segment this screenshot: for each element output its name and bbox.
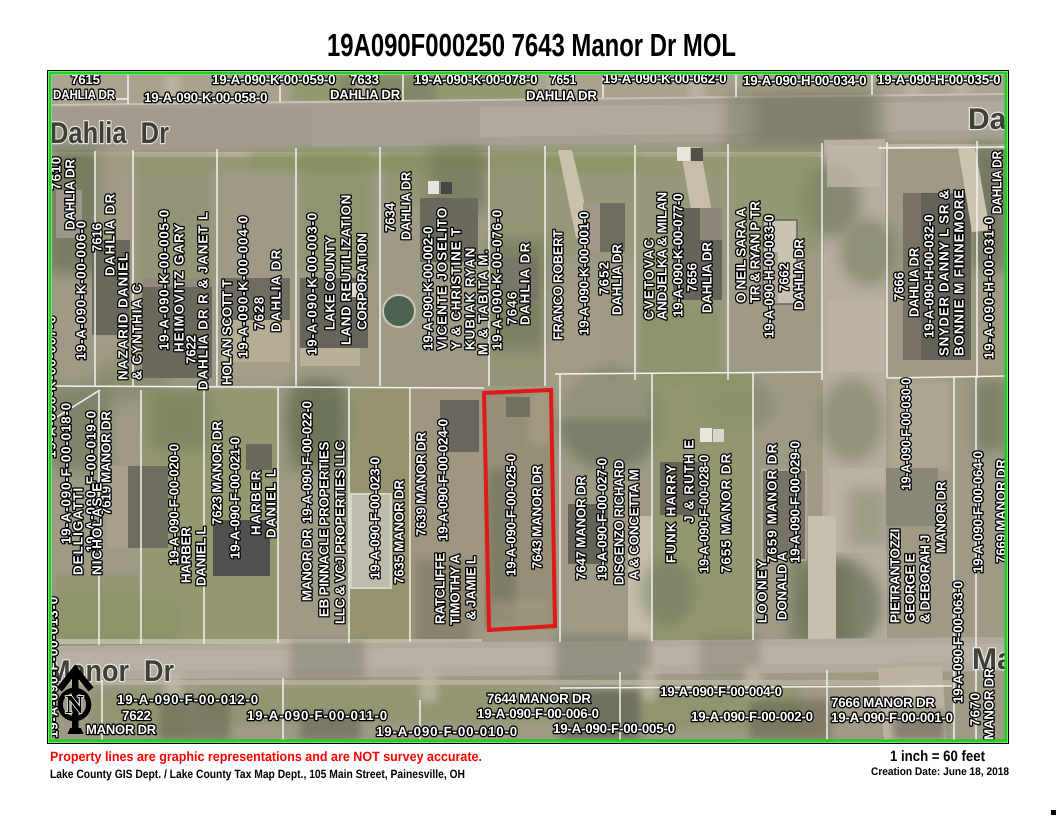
- svg-text:7634: 7634: [383, 202, 398, 232]
- svg-text:7666: 7666: [892, 272, 907, 301]
- svg-text:SNYDER DANNY L SR &: SNYDER DANNY L SR &: [937, 189, 952, 356]
- svg-text:A & CONCETTA M: A & CONCETTA M: [627, 469, 642, 580]
- svg-text:19-A-090-F-00-011-0: 19-A-090-F-00-011-0: [247, 708, 387, 723]
- svg-text:19A090F000250 7643 Manor Dr MO: 19A090F000250 7643 Manor Dr MOL: [327, 27, 736, 63]
- svg-text:& DEBORAH J: & DEBORAH J: [918, 535, 933, 623]
- svg-text:DAHLIA DR: DAHLIA DR: [399, 171, 414, 240]
- svg-text:EB PINNACLE PROPERTIES: EB PINNACLE PROPERTIES: [317, 442, 332, 617]
- svg-text:PIETRANTOZZI: PIETRANTOZZI: [888, 529, 903, 623]
- svg-text:HEIMOVITZ GARY: HEIMOVITZ GARY: [172, 224, 187, 352]
- svg-text:Dahlia Dr: Dahlia Dr: [50, 117, 169, 150]
- svg-text:DELLIGATTI: DELLIGATTI: [71, 488, 86, 575]
- svg-text:19-A-090-F-00-030-0: 19-A-090-F-00-030-0: [899, 378, 914, 490]
- svg-text:19-A-090-F-00-001-0: 19-A-090-F-00-001-0: [831, 710, 953, 725]
- svg-text:DAHLIA DR: DAHLIA DR: [792, 239, 807, 310]
- svg-text:& JAMIE L: & JAMIE L: [464, 556, 479, 620]
- svg-text:DONALD A: DONALD A: [775, 551, 790, 620]
- svg-text:MANOR DR: MANOR DR: [300, 529, 315, 601]
- svg-text:DAHLIA DR: DAHLIA DR: [269, 249, 284, 332]
- svg-text:DAHLIA DR: DAHLIA DR: [610, 244, 625, 315]
- svg-text:7639 MANOR DR: 7639 MANOR DR: [414, 432, 429, 536]
- svg-text:19-A-090-K-00-004-0: 19-A-090-K-00-004-0: [236, 216, 251, 358]
- svg-text:19-A-090-H-00-032-0: 19-A-090-H-00-032-0: [922, 215, 937, 338]
- svg-text:19-A-090-K-00-001-0: 19-A-090-K-00-001-0: [577, 212, 592, 335]
- svg-text:DANIEL L: DANIEL L: [264, 469, 279, 538]
- svg-text:19-A-090-F-00-012-0: 19-A-090-F-00-012-0: [117, 692, 258, 707]
- svg-text:O NEIL SARA A: O NEIL SARA A: [734, 207, 749, 303]
- svg-text:7628: 7628: [252, 297, 267, 330]
- svg-text:DAHLIA DR: DAHLIA DR: [907, 247, 922, 317]
- svg-text:Lake County GIS Dept. / Lake C: Lake County GIS Dept. / Lake County Tax …: [50, 767, 465, 781]
- svg-text:FRANCO ROBERT: FRANCO ROBERT: [551, 230, 566, 340]
- svg-text:7644 MANOR DR: 7644 MANOR DR: [487, 691, 591, 706]
- svg-text:19-A-090-K-00-076-0: 19-A-090-K-00-076-0: [490, 210, 505, 350]
- svg-text:7670: 7670: [968, 693, 983, 726]
- svg-text:DAHLIA DR: DAHLIA DR: [53, 87, 116, 102]
- svg-text:19-A-090-F-00-002-0: 19-A-090-F-00-002-0: [691, 709, 813, 724]
- svg-text:19-A-090-K-00-006-0: 19-A-090-K-00-006-0: [74, 221, 89, 360]
- svg-text:7635 MANOR DR: 7635 MANOR DR: [392, 480, 407, 584]
- svg-text:19-A-090-H-00-033-0: 19-A-090-H-00-033-0: [762, 215, 777, 338]
- svg-text:CORPORATION: CORPORATION: [355, 233, 370, 330]
- svg-text:DAHLIA DR: DAHLIA DR: [518, 242, 533, 325]
- svg-text:RATCLIFFE: RATCLIFFE: [433, 553, 448, 624]
- svg-text:7655 MANOR DR: 7655 MANOR DR: [719, 453, 734, 573]
- svg-text:19-A-090-K-00-077-0: 19-A-090-K-00-077-0: [671, 194, 686, 317]
- svg-text:TR & RYAN P TR: TR & RYAN P TR: [748, 201, 763, 303]
- svg-text:DAHLIA DR: DAHLIA DR: [330, 87, 401, 102]
- svg-text:J & RUTH E: J & RUTH E: [682, 440, 697, 523]
- svg-text:19-A-090-H-00-034-0: 19-A-090-H-00-034-0: [743, 73, 866, 88]
- svg-text:19-A-090-F-00-022-0: 19-A-090-F-00-022-0: [300, 401, 315, 523]
- svg-text:HARBER: HARBER: [179, 527, 194, 583]
- svg-text:19-A-090-F-00-029-0: 19-A-090-F-00-029-0: [788, 441, 803, 563]
- svg-text:19-A-090-F-00-023-0: 19-A-090-F-00-023-0: [368, 457, 383, 579]
- svg-text:19-A-090-F-00-005-0: 19-A-090-F-00-005-0: [553, 721, 675, 736]
- svg-text:LAND REUTILIZATION: LAND REUTILIZATION: [339, 195, 354, 345]
- svg-text:19-A-090-F-00-010-0: 19-A-090-F-00-010-0: [376, 724, 517, 739]
- svg-text:Property lines are graphic rep: Property lines are graphic representatio…: [50, 749, 482, 764]
- svg-text:19-A-090-F-00-025-0: 19-A-090-F-00-025-0: [504, 454, 519, 576]
- svg-text:19-A-090-K-00-002-0: 19-A-090-K-00-002-0: [421, 227, 436, 350]
- svg-text:DAHLIA DR: DAHLIA DR: [700, 242, 715, 313]
- svg-text:19-A-090-K-00-003-0: 19-A-090-K-00-003-0: [305, 213, 320, 355]
- svg-text:DAHLIA DR: DAHLIA DR: [63, 159, 78, 230]
- svg-text:DISCENZO RICHARD: DISCENZO RICHARD: [612, 459, 627, 585]
- svg-text:DAHLIA DR R & JANET L: DAHLIA DR R & JANET L: [196, 212, 211, 390]
- svg-text:19-A-090-K-00-058-0: 19-A-090-K-00-058-0: [144, 90, 267, 105]
- svg-text:19-A-090-F-00-028-0: 19-A-090-F-00-028-0: [697, 455, 712, 573]
- svg-text:7662: 7662: [777, 263, 792, 292]
- svg-text:7647 MANOR DR: 7647 MANOR DR: [574, 476, 589, 580]
- svg-text:VICENTE JOSELITO: VICENTE JOSELITO: [435, 208, 450, 350]
- svg-text:N: N: [65, 690, 84, 719]
- svg-text:19-A-090-F-00-063-0: 19-A-090-F-00-063-0: [951, 581, 966, 703]
- svg-text:Y & CHRISTINE T: Y & CHRISTINE T: [449, 228, 464, 350]
- svg-text:19-A-090-F-00-006-0: 19-A-090-F-00-006-0: [477, 706, 599, 721]
- svg-text:NICHOLAS E: NICHOLAS E: [90, 483, 105, 575]
- svg-text:7643 MANOR DR: 7643 MANOR DR: [530, 465, 545, 569]
- svg-text:7623 MANOR DR: 7623 MANOR DR: [210, 421, 225, 525]
- svg-text:19-A-090-F-00-004-0: 19-A-090-F-00-004-0: [660, 684, 782, 699]
- svg-text:19-A-090-F-00-027-0: 19-A-090-F-00-027-0: [595, 458, 610, 580]
- svg-text:MANOR DR: MANOR DR: [934, 481, 949, 553]
- svg-text:7656: 7656: [685, 263, 700, 292]
- svg-text:DANIEL L: DANIEL L: [194, 526, 209, 586]
- svg-text:19-A-090-F-00-021-0: 19-A-090-F-00-021-0: [228, 437, 243, 559]
- svg-text:19-A-090-F-00-064-0: 19-A-090-F-00-064-0: [971, 451, 986, 573]
- svg-text:LAKE COUNTY: LAKE COUNTY: [323, 236, 338, 330]
- svg-text:7659 MANOR DR: 7659 MANOR DR: [765, 443, 780, 563]
- svg-text:FUNK HARRY: FUNK HARRY: [664, 465, 679, 563]
- svg-text:ANDJELKA & MILAN: ANDJELKA & MILAN: [655, 192, 670, 320]
- svg-text:TIMOTHY A: TIMOTHY A: [448, 554, 463, 625]
- svg-text:19-A-090-K-00-005-0: 19-A-090-K-00-005-0: [157, 210, 172, 350]
- svg-text:DAHLIA DR: DAHLIA DR: [990, 150, 1005, 214]
- svg-text:19-A-090-F-00-024-0: 19-A-090-F-00-024-0: [436, 419, 451, 541]
- svg-text:MANOR DR: MANOR DR: [982, 668, 997, 740]
- svg-text:7622: 7622: [122, 708, 151, 723]
- svg-text:7666 MANOR DR: 7666 MANOR DR: [831, 695, 935, 710]
- svg-text:GEORGE E: GEORGE E: [903, 553, 918, 623]
- svg-text:BONNIE M FINNEMORE: BONNIE M FINNEMORE: [952, 190, 967, 356]
- svg-text:MANOR DR: MANOR DR: [86, 722, 157, 737]
- svg-text:LLC & VCJ PROPERTIES LLC: LLC & VCJ PROPERTIES LLC: [333, 441, 348, 624]
- svg-text:DAHLIA DR: DAHLIA DR: [526, 88, 597, 103]
- svg-text:HOLAN SCOTT T: HOLAN SCOTT T: [220, 280, 235, 385]
- svg-text:Creation Date: June 18, 2018: Creation Date: June 18, 2018: [871, 766, 1009, 778]
- svg-text:1 inch = 60 feet: 1 inch = 60 feet: [890, 748, 985, 765]
- svg-text:19-A-090-H-00-031-0: 19-A-090-H-00-031-0: [982, 217, 997, 359]
